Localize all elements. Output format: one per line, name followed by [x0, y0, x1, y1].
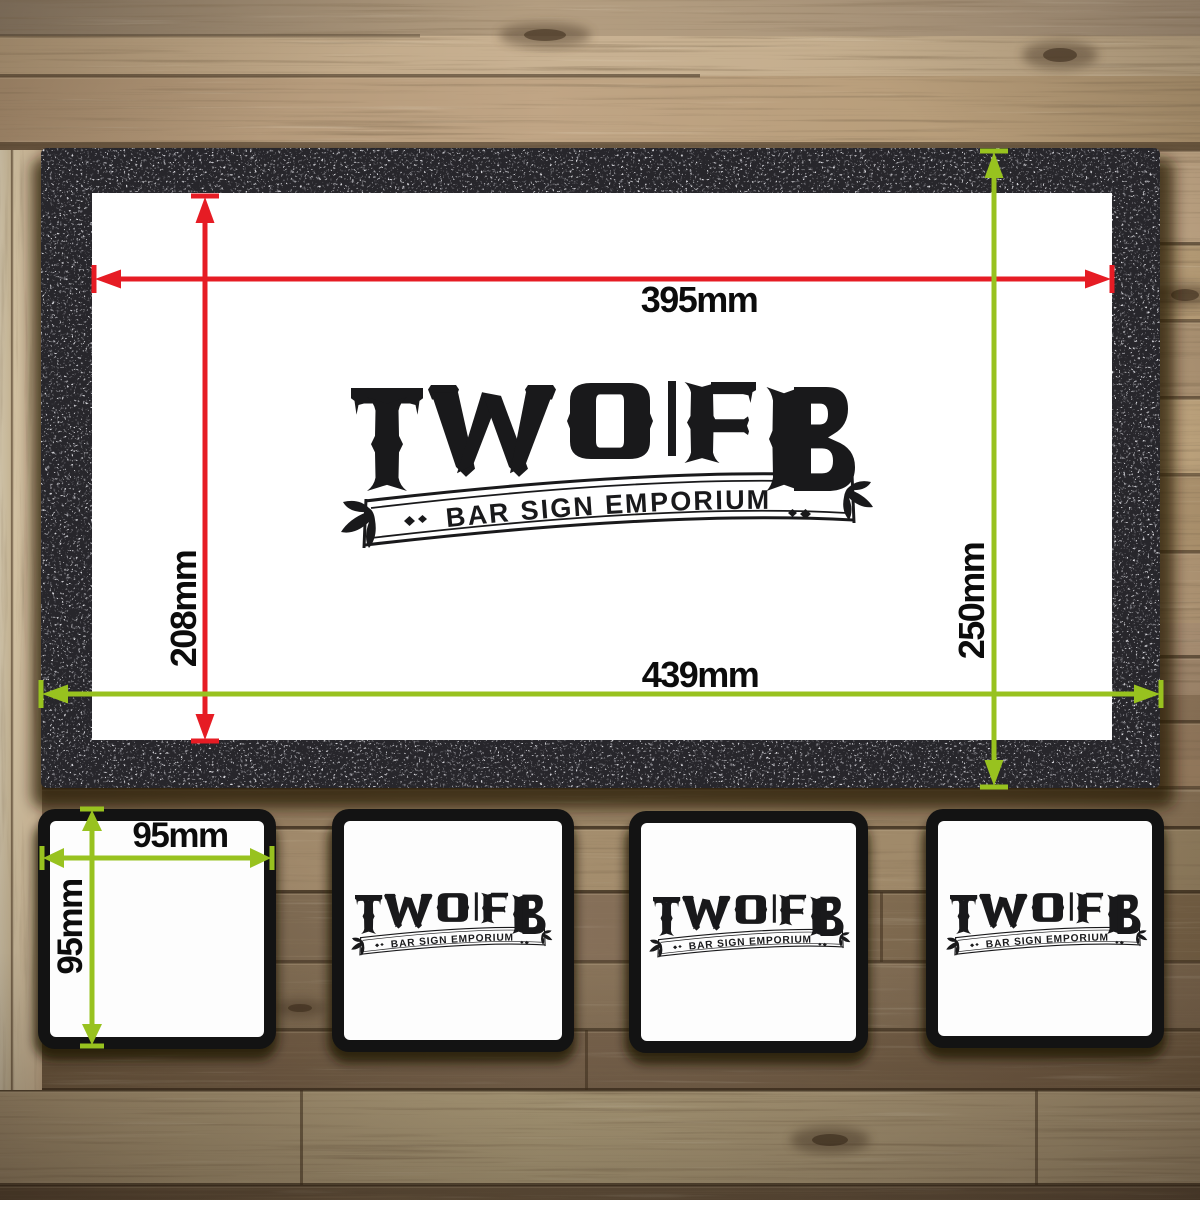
svg-text:439mm: 439mm	[642, 654, 759, 695]
svg-text:208mm: 208mm	[163, 551, 204, 668]
svg-text:95mm: 95mm	[51, 879, 90, 974]
svg-text:395mm: 395mm	[641, 279, 758, 320]
svg-text:250mm: 250mm	[951, 543, 992, 660]
svg-text:95mm: 95mm	[132, 816, 227, 855]
